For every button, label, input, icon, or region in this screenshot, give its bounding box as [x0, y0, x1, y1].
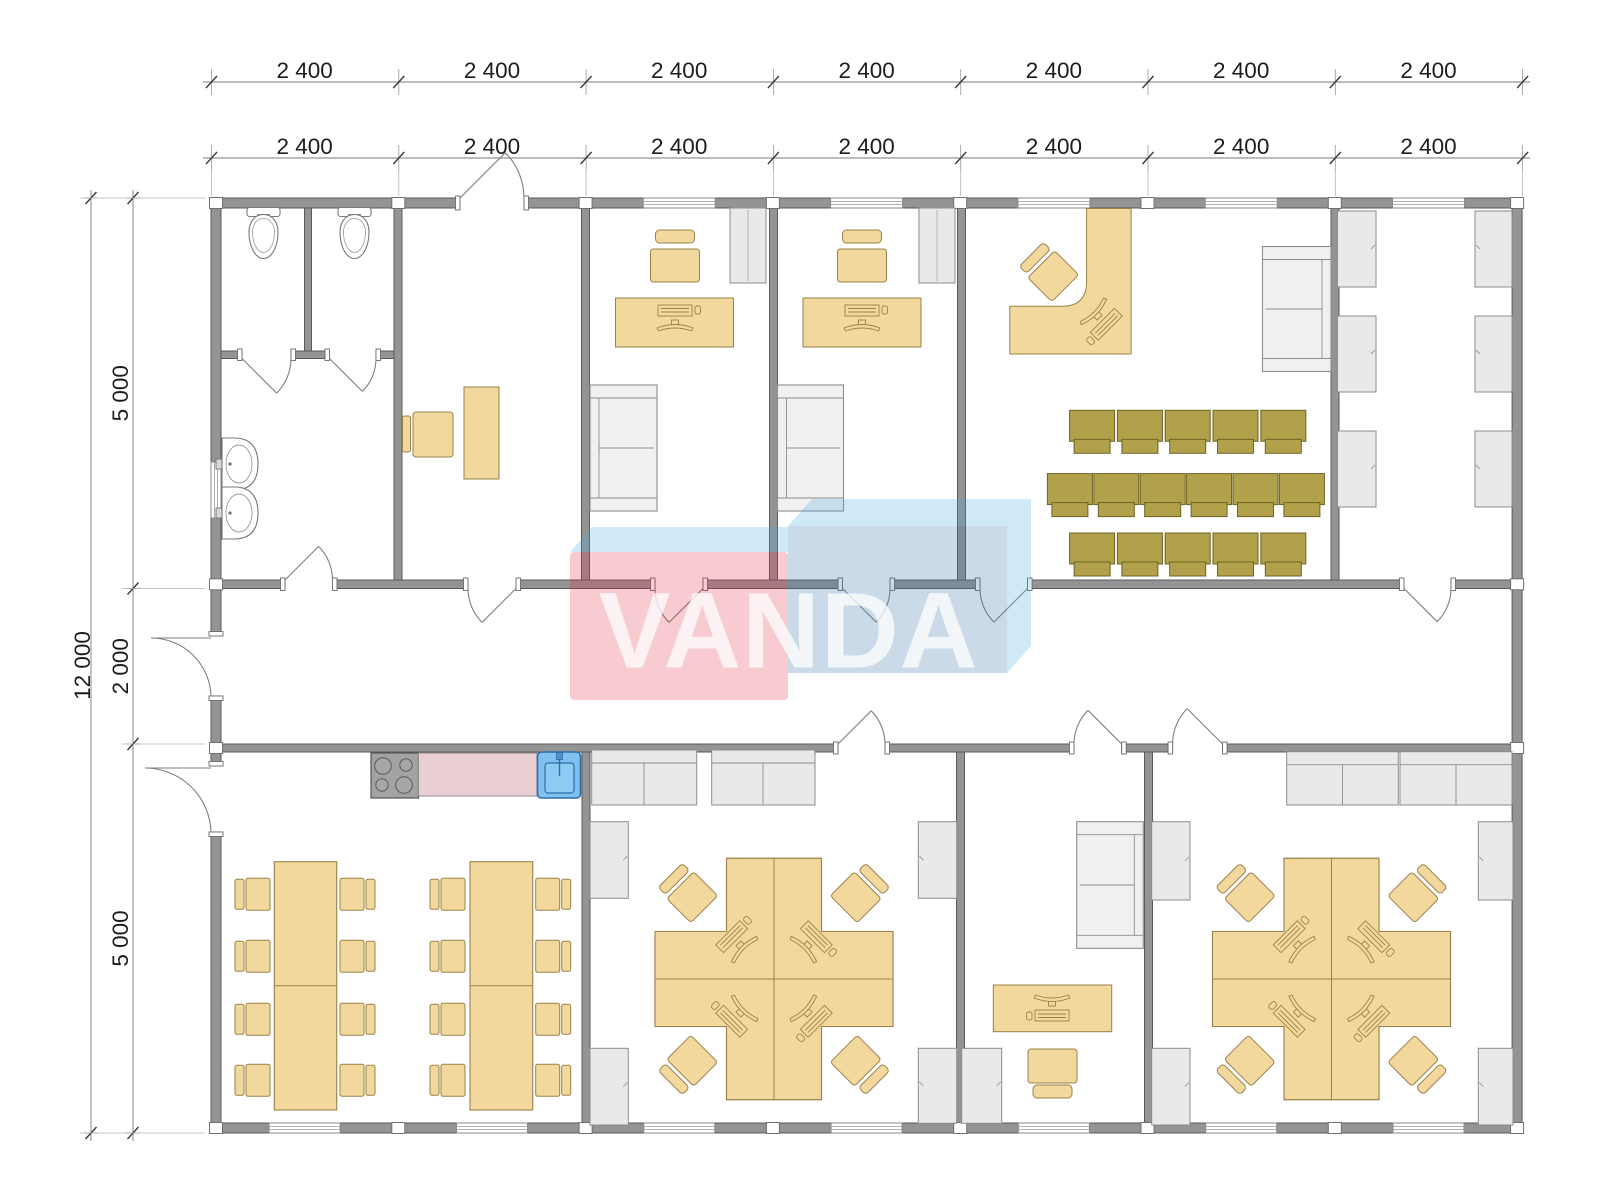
svg-text:2 400: 2 400 — [276, 58, 332, 83]
svg-text:2 400: 2 400 — [1213, 58, 1269, 83]
svg-text:2 400: 2 400 — [1026, 58, 1082, 83]
svg-text:2 400: 2 400 — [464, 58, 520, 83]
svg-text:5 000: 5 000 — [108, 365, 133, 421]
svg-text:12 000: 12 000 — [70, 631, 95, 700]
svg-text:2 400: 2 400 — [1213, 134, 1269, 159]
svg-text:2 400: 2 400 — [651, 134, 707, 159]
svg-text:2 400: 2 400 — [276, 134, 332, 159]
svg-text:5 000: 5 000 — [108, 910, 133, 966]
svg-text:2 400: 2 400 — [838, 134, 894, 159]
svg-text:2 400: 2 400 — [838, 58, 894, 83]
svg-text:2 400: 2 400 — [1400, 58, 1456, 83]
svg-text:2 400: 2 400 — [1400, 134, 1456, 159]
svg-text:2 400: 2 400 — [464, 134, 520, 159]
svg-text:2 000: 2 000 — [108, 638, 133, 694]
svg-text:2 400: 2 400 — [651, 58, 707, 83]
svg-text:2 400: 2 400 — [1026, 134, 1082, 159]
svg-text:VANDA: VANDA — [599, 570, 978, 691]
